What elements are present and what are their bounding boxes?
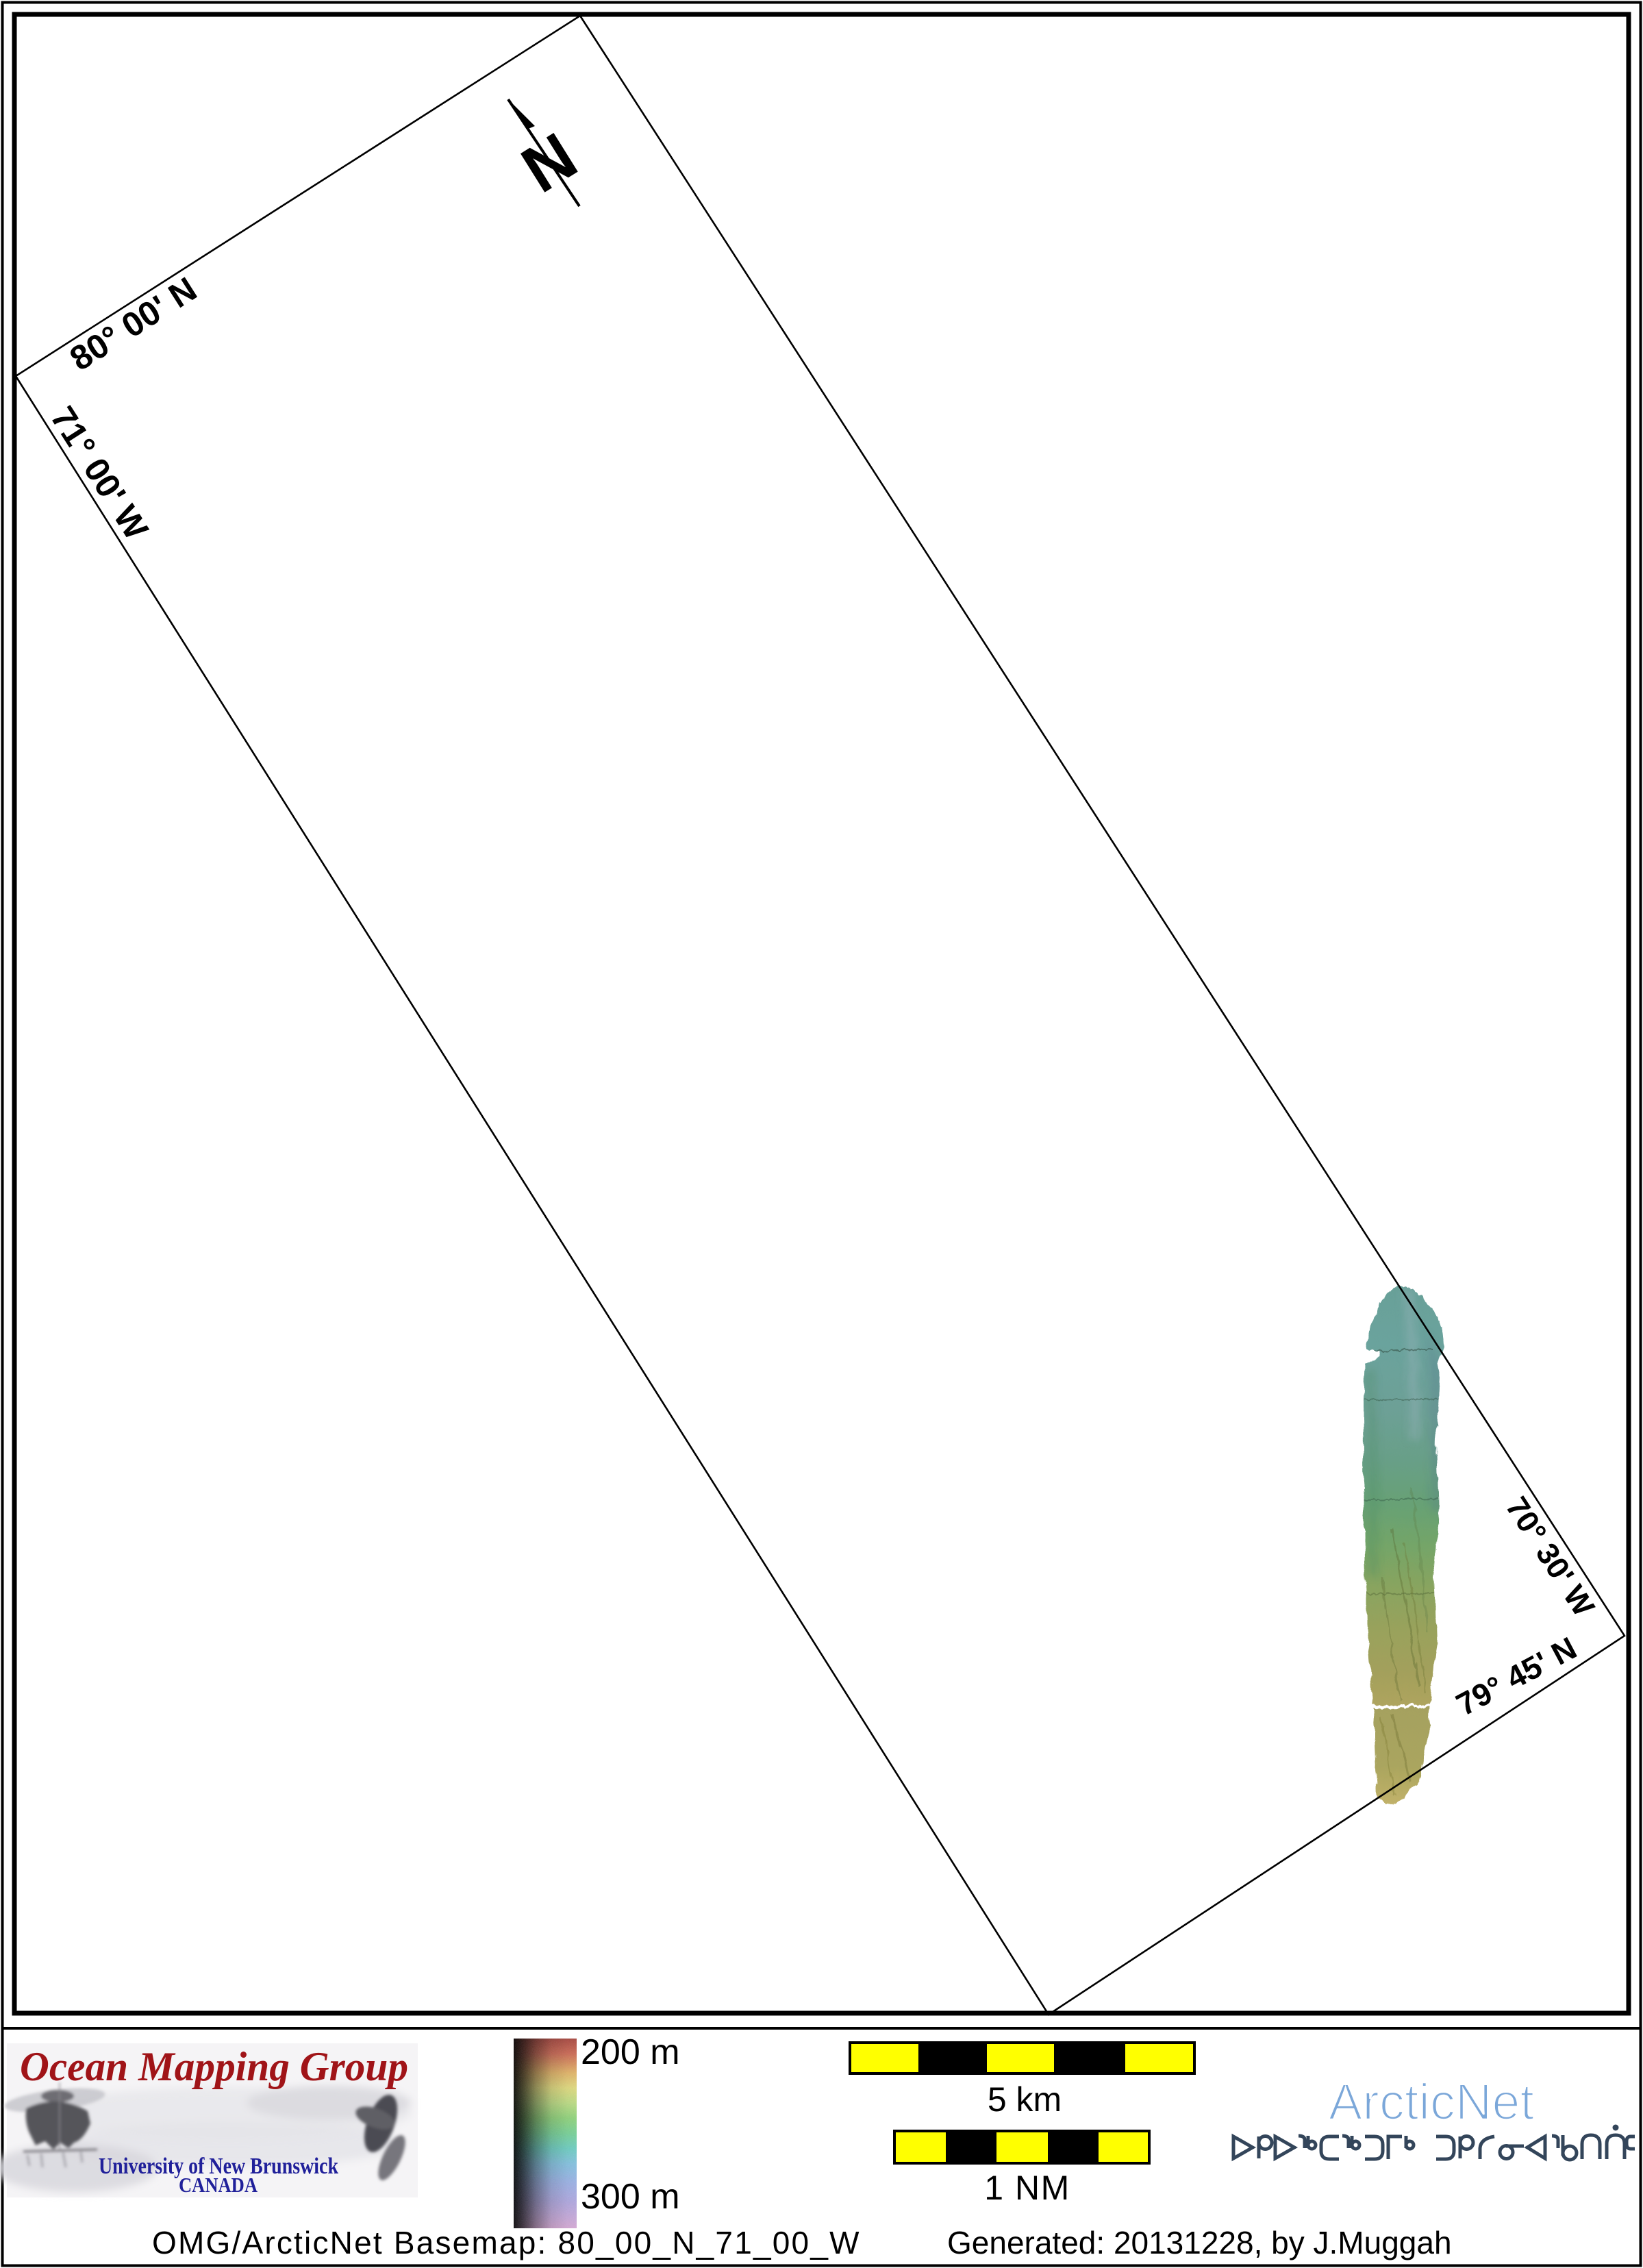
svg-text:5 km: 5 km — [988, 2080, 1062, 2119]
svg-text:CANADA: CANADA — [179, 2173, 258, 2197]
svg-text:Generated: 20131228, by J.Mugg: Generated: 20131228, by J.Muggah — [947, 2225, 1452, 2260]
svg-text:Ocean Mapping Group: Ocean Mapping Group — [20, 2044, 408, 2089]
svg-text:300 m: 300 m — [581, 2177, 680, 2217]
svg-text:OMG/ArcticNet Basemap: 80_00_N: OMG/ArcticNet Basemap: 80_00_N_71_00_W — [152, 2225, 861, 2260]
svg-text:1 NM: 1 NM — [984, 2169, 1070, 2207]
svg-text:ArcticNet: ArcticNet — [1329, 2073, 1535, 2130]
svg-text:200 m: 200 m — [581, 2032, 680, 2072]
